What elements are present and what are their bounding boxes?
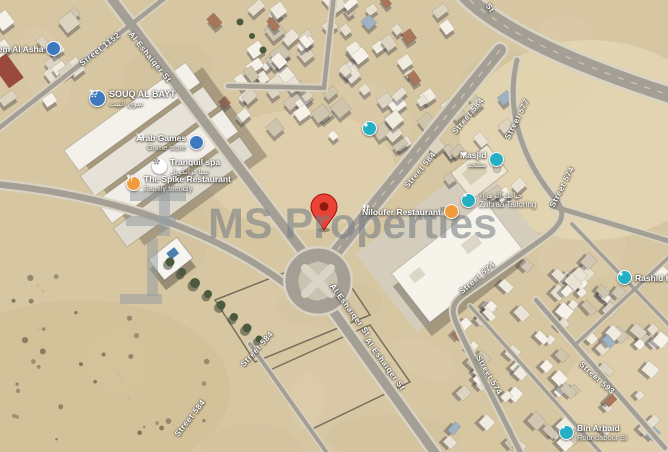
satellite-canvas [0,0,668,452]
mosque-icon [489,152,504,167]
poi-zahraa-tailoring[interactable]: خياطة الزهراء Zahraa Tailoring [461,191,536,209]
shopping-cart-icon [189,135,204,150]
poi-meem-al-asha[interactable]: Meem Al Asha [0,41,61,56]
satellite-map[interactable]: Street 1152 Al Eshaiqer St St Street 584… [0,0,668,452]
place-icon [559,425,574,440]
poi-arab-games[interactable]: Arab Games Game store [136,133,204,152]
place-icon [617,270,632,285]
poi-spike-restaurant[interactable]: The Spike Restaurant Family friendly [126,174,231,193]
poi-masjid[interactable]: Masjid مسجد [460,150,504,169]
poi-rashid[interactable]: Rashid H [617,270,668,285]
spa-flower-icon [152,159,167,174]
poi-unlabeled-place[interactable] [362,121,377,136]
poi-niloufer-restaurant[interactable]: Niloufer Restaurant [362,204,459,219]
restaurant-icon [444,204,459,219]
poi-souq-al-bayt[interactable]: SOUQ AL BAYT سوق البيت [89,89,176,108]
shopping-cart-icon [89,90,106,107]
restaurant-icon [126,176,141,191]
tailor-icon [461,193,476,208]
poi-bin-arbaid[interactable]: Bin Arbaid Roundabout St [559,423,627,442]
shopping-cart-icon [46,41,61,56]
place-icon [362,121,377,136]
